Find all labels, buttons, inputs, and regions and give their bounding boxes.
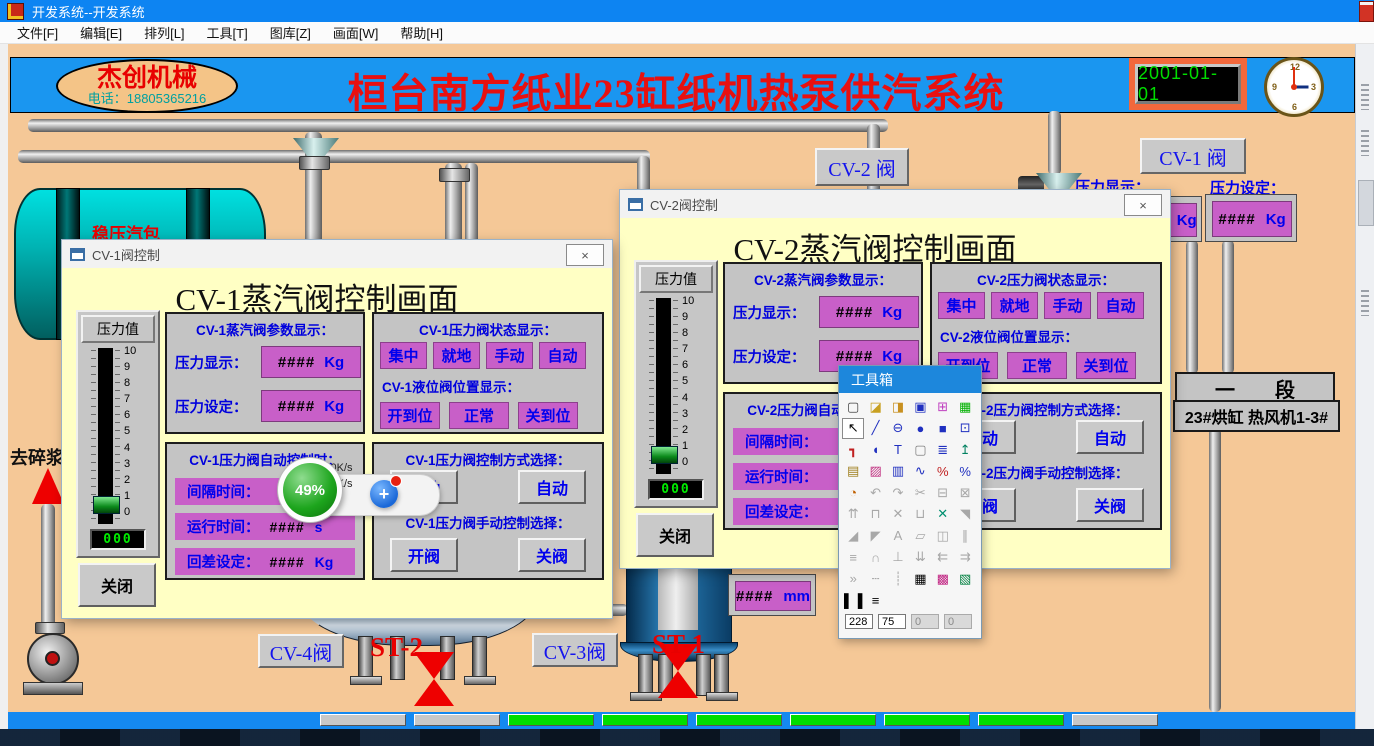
open-icon[interactable]: ◪ (864, 396, 886, 418)
param-panel: CV-1蒸汽阀参数显示： 压力显示： ####Kg 压力设定： ####Kg (165, 312, 365, 434)
param-label: 压力显示： (733, 302, 819, 323)
panel-title: CV-2蒸汽阀参数显示： (725, 269, 921, 289)
menu-bar: 文件[F]编辑[E]排列[L]工具[T]图库[Z]画面[W]帮助[H] (0, 22, 1374, 44)
dock-grip-icon (1361, 290, 1369, 316)
ungroup-icon[interactable]: ✕ (887, 504, 909, 526)
window-title: 开发系统--开发系统 (32, 2, 145, 21)
pointer-icon[interactable]: ↖ (842, 418, 864, 440)
menu-item[interactable]: 帮助[H] (389, 22, 454, 44)
align-center-icon[interactable]: ⊥ (887, 547, 909, 569)
gauge-tick-label: 1 (682, 438, 694, 454)
status-chip: 集中 (938, 292, 985, 319)
tag-blue-icon[interactable]: % (954, 461, 976, 483)
tank-leg (696, 654, 711, 696)
status-chip: 手动 (1044, 292, 1091, 319)
tank-foot (706, 692, 738, 701)
gauge-tick-label: 7 (682, 341, 694, 357)
status-panel: CV-1压力阀状态显示： 集中就地手动自动 CV-1液位阀位置显示： 开到位正常… (372, 312, 604, 434)
manual-button[interactable]: 关阀 (1076, 488, 1144, 522)
rotate-right-icon[interactable]: ◤ (864, 525, 886, 547)
rocket-icon[interactable]: ↥ (954, 439, 976, 461)
tank-leg (714, 654, 729, 696)
pressure-gauge: 压力值 109876543210 000 (76, 310, 160, 558)
level-value: #### (736, 588, 773, 605)
cv3-valve-button[interactable]: CV-3阀 (532, 633, 618, 667)
gauge-tick-label: 6 (124, 407, 136, 423)
gauge-readout: 000 (648, 479, 704, 500)
exit-icon[interactable]: ◨ (887, 396, 909, 418)
gauge-tick-label: 5 (682, 373, 694, 389)
pipe (1186, 240, 1198, 374)
gauge-tick-label: 5 (124, 423, 136, 439)
gauge-tick-label: 10 (682, 293, 694, 309)
level-unit: mm (783, 588, 810, 605)
chart-icon[interactable]: ▥ (887, 461, 909, 483)
tank-foot (350, 676, 382, 685)
pipe (28, 119, 888, 132)
group-icon[interactable]: ⇈ (842, 504, 864, 526)
mode-button[interactable]: 自动 (518, 470, 586, 504)
pressure-set-box: ####Kg (1205, 194, 1297, 242)
cv1-valve-dialog: CV-1阀控制 × CV-1蒸汽阀控制画面 压力值 109876543210 0… (62, 240, 612, 618)
os-taskbar[interactable] (0, 729, 1374, 746)
script-icon[interactable]: ▤ (842, 461, 864, 483)
align-left-icon[interactable]: ⇇ (932, 547, 954, 569)
dryer-box: 23#烘缸 热风机1-3# (1173, 400, 1340, 432)
background-app-icon[interactable] (1359, 1, 1374, 22)
panel-title: CV-1蒸汽阀参数显示： (167, 319, 363, 339)
close-dialog-button[interactable]: 关闭 (78, 563, 156, 607)
status-box (508, 714, 594, 726)
menu-item[interactable]: 排列[L] (133, 22, 195, 44)
dock-grip-icon (1361, 130, 1369, 156)
gauge-tick-label: 2 (682, 422, 694, 438)
gauge-tick-label: 10 (124, 343, 136, 359)
gauge-readout: 000 (90, 529, 146, 550)
status-box (602, 714, 688, 726)
position-chip: 开到位 (380, 402, 440, 429)
window-icon (70, 248, 85, 261)
gauge-label: 压力值 (81, 315, 155, 343)
level-box: ####mm (728, 574, 816, 616)
tag-red-icon[interactable]: % (932, 461, 954, 483)
position-chip: 关到位 (518, 402, 578, 429)
mode-button[interactable]: 自动 (1076, 420, 1144, 454)
new-icon[interactable]: ▢ (842, 396, 864, 418)
gauge-thermometer: 109876543210 (86, 348, 150, 524)
position-chip: 正常 (1007, 352, 1067, 379)
param-label: 压力设定： (733, 346, 819, 367)
status-box (696, 714, 782, 726)
gauge-tick-label: 3 (124, 456, 136, 472)
gauge-tick-label: 4 (124, 440, 136, 456)
cut-icon[interactable]: ✂ (909, 482, 931, 504)
status-box (790, 714, 876, 726)
status-chip: 集中 (380, 342, 427, 369)
date-value: 2001-01-01 (1138, 63, 1238, 105)
dialog-titlebar[interactable]: CV-1阀控制 × (62, 240, 612, 268)
gauge-tick-label: 2 (124, 472, 136, 488)
tank-leg (472, 636, 487, 680)
font-icon[interactable]: A (887, 525, 909, 547)
ellipse-icon[interactable]: ⊖ (887, 418, 909, 440)
st1-valve-bottom (658, 671, 698, 698)
status-chip: 自动 (539, 342, 586, 369)
company-logo: 杰创机械 电话：18805365216 (56, 59, 238, 113)
cv4-valve-button[interactable]: CV-4阀 (258, 634, 344, 668)
status-chip: 就地 (433, 342, 480, 369)
pipe (1048, 111, 1061, 175)
coordinate-field[interactable]: 0 (944, 614, 972, 629)
status-box (320, 714, 406, 726)
pipe (41, 504, 55, 634)
paste-icon[interactable]: ⊠ (954, 482, 976, 504)
st2-label: ST-2 (370, 632, 423, 663)
clock-center (1291, 84, 1297, 90)
button-icon[interactable]: ▢ (909, 439, 931, 461)
to-pulper-label: 去碎浆 (10, 444, 64, 470)
vdots-icon[interactable]: ┊ (887, 568, 909, 590)
gauge-tick-label: 6 (682, 357, 694, 373)
menu-item[interactable]: 图库[Z] (259, 22, 322, 44)
mirror-icon[interactable]: ∥ (954, 525, 976, 547)
toolbox-titlebar[interactable]: 工具箱 (839, 366, 981, 393)
status-strip (8, 712, 1355, 729)
cv1-valve-button[interactable]: CV-1 阀 (1140, 138, 1246, 174)
pipe (1222, 240, 1234, 374)
window-titlebar[interactable]: 开发系统--开发系统 (0, 0, 1374, 22)
animate-icon[interactable]: ◔ (842, 482, 864, 504)
status-box (1072, 714, 1158, 726)
pressure-gauge: 压力值 109876543210 000 (634, 260, 718, 508)
speed-overlay: ↑0K/s ↓0K/s 49% + (278, 458, 428, 530)
pipe (18, 150, 650, 163)
gauge-tick-label: 9 (682, 309, 694, 325)
param-value-box: ####Kg (261, 346, 361, 378)
company-name: 杰创机械 (97, 66, 197, 91)
clock-9: 9 (1272, 82, 1277, 92)
node-select-icon[interactable]: ▧ (954, 568, 976, 590)
gauge-tick-label: 1 (124, 488, 136, 504)
panel-title: CV-1压力阀状态显示： (374, 319, 602, 339)
left-gutter (0, 44, 8, 746)
manual-button[interactable]: 关阀 (518, 538, 586, 572)
panel-subtitle: CV-1液位阀位置显示： (382, 376, 520, 396)
gauge-tick-label: 0 (682, 454, 694, 470)
save-icon[interactable]: ▣ (909, 396, 931, 418)
param-label: 压力设定： (175, 396, 261, 417)
status-box (414, 714, 500, 726)
style-copy-icon[interactable]: ▱ (909, 525, 931, 547)
undo-icon[interactable]: ↶ (864, 482, 886, 504)
rotate-left-icon[interactable]: ◢ (842, 525, 864, 547)
gauge-tick-label: 7 (124, 391, 136, 407)
notification-dot (390, 475, 402, 487)
pressure-value: #### (1218, 211, 1255, 228)
param-value-box: ####Kg (819, 296, 919, 328)
gauge-tick-label: 0 (124, 504, 136, 520)
auto-row: 回差设定：####Kg (175, 548, 355, 575)
dialog-titlebar[interactable]: CV-2阀控制 × (620, 190, 1170, 218)
gauge-tick-label: 9 (124, 359, 136, 375)
analog-clock: 12 3 6 9 (1264, 57, 1324, 117)
fill-style-icon[interactable]: ▌▐ (842, 590, 864, 612)
align-right-icon[interactable]: ⇉ (954, 547, 976, 569)
clock-12: 12 (1290, 62, 1300, 72)
arc-icon[interactable]: ◖ (864, 439, 886, 461)
clock-6: 6 (1292, 102, 1297, 112)
distribute-icon[interactable]: ⇊ (909, 547, 931, 569)
progress-percent: 49% (283, 463, 337, 517)
polyline-icon[interactable]: ⊡ (954, 418, 976, 440)
company-phone: 电话：18805365216 (88, 91, 207, 106)
side-dock (1355, 44, 1374, 729)
coordinate-field[interactable]: 0 (911, 614, 939, 629)
close-dialog-button[interactable]: 关闭 (636, 513, 714, 557)
pipe (1209, 428, 1221, 712)
app-window: 开发系统--开发系统 — × 文件[F]编辑[E]排列[L]工具[T]图库[Z]… (0, 0, 1374, 746)
gauge-tick-label: 3 (682, 406, 694, 422)
pipe-flange (439, 168, 470, 182)
gauge-tick-label: 4 (682, 390, 694, 406)
tank-leg (638, 654, 653, 696)
gauge-label: 压力值 (639, 265, 713, 293)
copy-icon[interactable]: ⊟ (932, 482, 954, 504)
menu-item[interactable]: 工具[T] (196, 22, 259, 44)
line-icon[interactable]: ╱ (864, 418, 886, 440)
redo-icon[interactable]: ↷ (887, 482, 909, 504)
param-value-box: ####Kg (261, 390, 361, 422)
to-bottom-icon[interactable]: ⊔ (909, 504, 931, 526)
gauge-thumb[interactable] (651, 446, 678, 464)
window-icon (628, 198, 643, 211)
rect-icon[interactable]: ■ (932, 418, 954, 440)
grid-icon[interactable]: ▦ (909, 568, 931, 590)
pressure-unit: Kg (1177, 212, 1197, 229)
pump-hub (45, 651, 60, 666)
dialog-title: CV-1阀控制 (92, 245, 160, 264)
status-box (978, 714, 1064, 726)
dock-grip-icon (1361, 84, 1369, 110)
gauge-tick-label: 8 (682, 325, 694, 341)
report-icon[interactable]: ≣ (932, 439, 954, 461)
pump-base (23, 682, 83, 695)
st1-label: ST-1 (652, 629, 705, 660)
flow-arrow (32, 468, 64, 504)
pipe-icon[interactable]: ┓ (842, 439, 864, 461)
status-chip: 自动 (1097, 292, 1144, 319)
menu-item[interactable]: 画面[W] (322, 22, 390, 44)
coordinate-field[interactable]: 75 (878, 614, 906, 629)
panel-title: CV-2压力阀状态显示： (932, 269, 1160, 289)
date-display: 2001-01-01 (1129, 58, 1247, 110)
st2-valve-bottom (414, 679, 454, 706)
app-icon (7, 3, 24, 20)
hdots-icon[interactable]: ┄ (864, 568, 886, 590)
palette-icon[interactable]: ▩ (932, 568, 954, 590)
menu-item[interactable]: 文件[F] (6, 22, 69, 44)
menu-item[interactable]: 编辑[E] (69, 22, 133, 44)
dialog-title: CV-2阀控制 (650, 195, 718, 214)
image-icon[interactable]: ▨ (864, 461, 886, 483)
status-chip: 手动 (486, 342, 533, 369)
align-top-icon[interactable]: ∩ (864, 547, 886, 569)
dock-button[interactable] (1358, 180, 1374, 226)
dialog-close-button[interactable]: × (1124, 194, 1162, 216)
page-title: 桓台南方纸业23缸纸机热泵供汽系统 (281, 61, 1071, 119)
tank-foot (464, 676, 496, 685)
cv2-valve-button[interactable]: CV-2 阀 (815, 148, 909, 186)
dialog-close-button[interactable]: × (566, 244, 604, 266)
status-chip: 就地 (991, 292, 1038, 319)
display-icon[interactable]: ▦ (954, 396, 976, 418)
capture-icon[interactable]: ⊞ (932, 396, 954, 418)
header-banner: 杰创机械 电话：18805365216 桓台南方纸业23缸纸机热泵供汽系统 20… (10, 57, 1355, 113)
align-bottom-icon[interactable]: ≡ (842, 547, 864, 569)
pipe-flange (299, 156, 330, 170)
corner-icon[interactable]: ◥ (954, 504, 976, 526)
param-label: 压力显示： (175, 352, 261, 373)
progress-ball[interactable]: 49% (278, 458, 342, 522)
swap-icon[interactable]: ✕ (932, 504, 954, 526)
flip-icon[interactable]: ◫ (932, 525, 954, 547)
manual-button[interactable]: 开阀 (390, 538, 458, 572)
clock-3: 3 (1311, 82, 1316, 92)
gauge-thumb[interactable] (93, 496, 120, 514)
coordinate-field[interactable]: 228 (845, 614, 873, 629)
gauge-tick-label: 8 (124, 375, 136, 391)
position-chip: 关到位 (1076, 352, 1136, 379)
gauge-thermometer: 109876543210 (644, 298, 708, 474)
panel-subtitle: CV-2液位阀位置显示： (940, 326, 1078, 346)
trend-icon[interactable]: ∿ (909, 461, 931, 483)
position-chip: 正常 (449, 402, 509, 429)
toolbox-palette: 工具箱 ▢◪◨▣⊞▦↖╱⊖●■⊡┓◖T▢≣↥▤▨▥∿%%◔↶↷✂⊟⊠⇈⊓✕⊔✕◥… (838, 365, 982, 639)
circle-icon[interactable]: ● (909, 418, 931, 440)
pressure-unit: Kg (1266, 211, 1286, 228)
send-icon[interactable]: » (842, 568, 864, 590)
to-top-icon[interactable]: ⊓ (864, 504, 886, 526)
line-style-icon[interactable]: ≡ (864, 590, 886, 612)
text-icon[interactable]: T (887, 439, 909, 461)
status-box (884, 714, 970, 726)
